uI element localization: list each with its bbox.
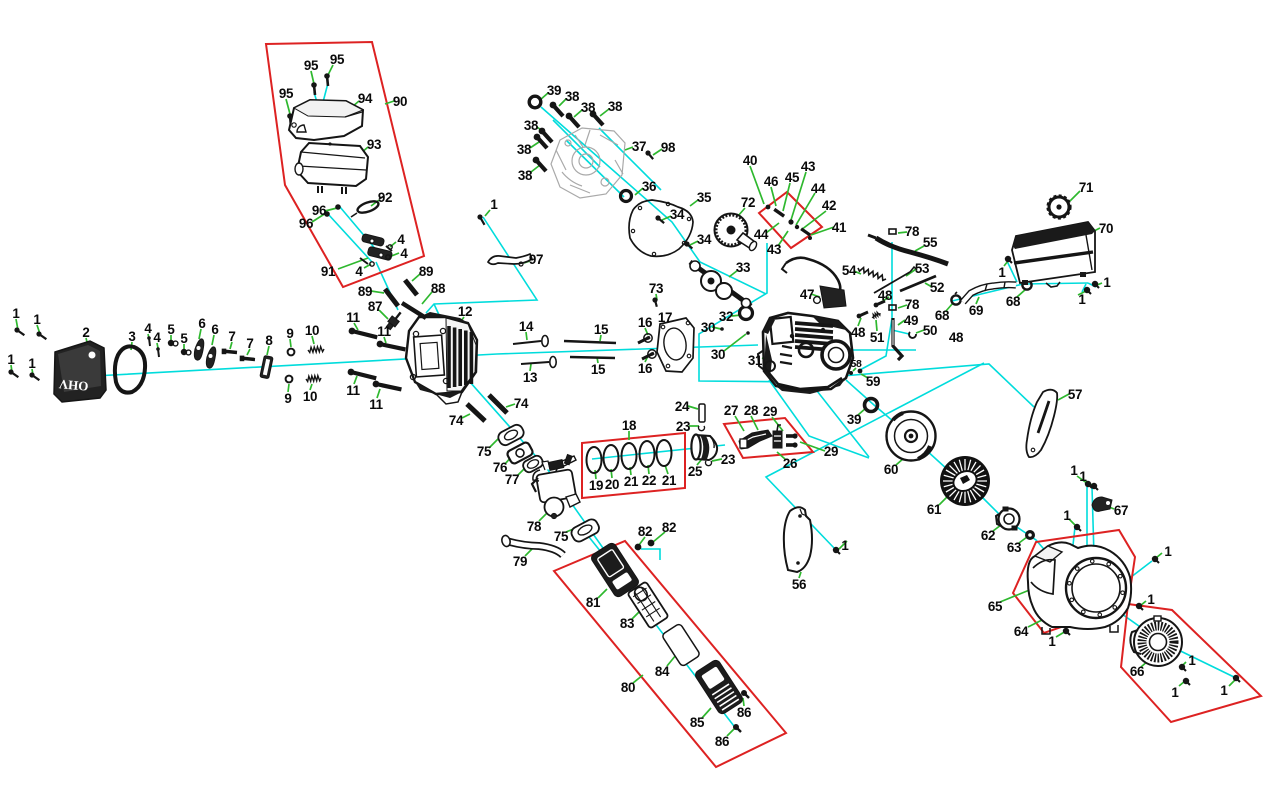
svg-text:44: 44 xyxy=(811,181,826,196)
svg-text:68: 68 xyxy=(1006,294,1021,309)
svg-text:70: 70 xyxy=(1099,221,1113,236)
svg-text:64: 64 xyxy=(1014,624,1029,639)
svg-text:9: 9 xyxy=(284,391,291,406)
svg-text:1: 1 xyxy=(33,312,41,327)
svg-text:47: 47 xyxy=(800,287,814,302)
svg-text:93: 93 xyxy=(367,137,381,152)
svg-text:4: 4 xyxy=(144,321,152,336)
svg-text:41: 41 xyxy=(832,220,847,235)
svg-text:34: 34 xyxy=(697,232,712,247)
svg-text:6: 6 xyxy=(211,322,218,337)
svg-text:17: 17 xyxy=(658,310,672,325)
svg-text:46: 46 xyxy=(764,174,778,189)
svg-text:1: 1 xyxy=(1220,683,1228,698)
svg-text:77: 77 xyxy=(505,472,519,487)
svg-text:60: 60 xyxy=(884,462,898,477)
svg-text:1: 1 xyxy=(998,265,1006,280)
svg-text:1: 1 xyxy=(12,306,20,321)
svg-text:23: 23 xyxy=(721,452,735,467)
svg-text:5: 5 xyxy=(180,331,188,346)
svg-text:92: 92 xyxy=(378,190,392,205)
svg-text:1: 1 xyxy=(1103,275,1111,290)
svg-text:96: 96 xyxy=(299,216,313,231)
svg-text:95: 95 xyxy=(279,86,294,101)
svg-text:1: 1 xyxy=(1070,463,1078,478)
svg-text:49: 49 xyxy=(904,313,918,328)
svg-text:38: 38 xyxy=(524,118,539,133)
svg-text:15: 15 xyxy=(591,362,606,377)
svg-text:50: 50 xyxy=(923,323,937,338)
svg-text:1: 1 xyxy=(1171,685,1179,700)
svg-text:57: 57 xyxy=(1068,387,1082,402)
svg-text:3: 3 xyxy=(128,329,135,344)
svg-text:66: 66 xyxy=(1130,664,1144,679)
svg-text:7: 7 xyxy=(246,336,253,351)
svg-text:1: 1 xyxy=(1078,292,1086,307)
svg-text:22: 22 xyxy=(642,473,656,488)
svg-text:11: 11 xyxy=(369,397,383,412)
svg-text:79: 79 xyxy=(513,554,527,569)
svg-text:11: 11 xyxy=(377,324,391,339)
svg-text:20: 20 xyxy=(605,477,619,492)
svg-text:21: 21 xyxy=(624,474,639,489)
svg-text:38: 38 xyxy=(518,168,533,183)
svg-text:35: 35 xyxy=(697,190,712,205)
svg-text:1: 1 xyxy=(490,197,498,212)
svg-text:89: 89 xyxy=(358,284,372,299)
svg-text:38: 38 xyxy=(581,100,596,115)
svg-text:78: 78 xyxy=(905,224,920,239)
svg-text:4: 4 xyxy=(153,330,161,345)
svg-text:84: 84 xyxy=(655,664,670,679)
svg-text:8: 8 xyxy=(265,333,273,348)
svg-text:16: 16 xyxy=(638,315,652,330)
svg-text:30: 30 xyxy=(711,347,725,362)
svg-text:4: 4 xyxy=(397,232,405,247)
svg-text:97: 97 xyxy=(529,252,543,267)
svg-text:37: 37 xyxy=(632,139,646,154)
svg-text:45: 45 xyxy=(785,170,800,185)
svg-text:1: 1 xyxy=(28,356,36,371)
svg-text:43: 43 xyxy=(767,242,781,257)
svg-text:56: 56 xyxy=(792,577,806,592)
svg-text:74: 74 xyxy=(514,396,529,411)
svg-text:16: 16 xyxy=(638,361,652,376)
svg-text:21: 21 xyxy=(662,473,677,488)
svg-text:29: 29 xyxy=(824,444,838,459)
svg-text:95: 95 xyxy=(330,52,345,67)
svg-text:11: 11 xyxy=(346,310,360,325)
svg-text:38: 38 xyxy=(517,142,532,157)
svg-text:86: 86 xyxy=(737,705,751,720)
svg-text:54: 54 xyxy=(842,263,857,278)
svg-text:96: 96 xyxy=(312,203,326,218)
svg-text:23: 23 xyxy=(676,419,690,434)
svg-text:82: 82 xyxy=(662,520,676,535)
svg-text:73: 73 xyxy=(649,281,663,296)
svg-text:31: 31 xyxy=(748,353,763,368)
svg-text:1: 1 xyxy=(1188,653,1196,668)
svg-text:28: 28 xyxy=(744,403,759,418)
svg-text:4: 4 xyxy=(355,264,363,279)
svg-text:10: 10 xyxy=(303,389,317,404)
svg-text:86: 86 xyxy=(715,734,729,749)
svg-text:68: 68 xyxy=(935,308,950,323)
svg-text:48: 48 xyxy=(851,325,866,340)
svg-text:40: 40 xyxy=(743,153,757,168)
svg-text:81: 81 xyxy=(586,595,601,610)
svg-text:63: 63 xyxy=(1007,540,1021,555)
svg-text:1: 1 xyxy=(1063,508,1071,523)
svg-text:80: 80 xyxy=(621,680,635,695)
svg-text:51: 51 xyxy=(870,330,885,345)
svg-text:58: 58 xyxy=(850,358,862,370)
svg-text:75: 75 xyxy=(477,444,492,459)
svg-text:1: 1 xyxy=(1164,544,1172,559)
svg-text:67: 67 xyxy=(1114,503,1128,518)
svg-text:4: 4 xyxy=(400,246,408,261)
svg-text:39: 39 xyxy=(547,83,561,98)
svg-text:61: 61 xyxy=(927,502,942,517)
svg-text:7: 7 xyxy=(228,329,235,344)
svg-text:65: 65 xyxy=(988,599,1003,614)
svg-text:55: 55 xyxy=(923,235,938,250)
svg-text:78: 78 xyxy=(905,297,920,312)
svg-text:71: 71 xyxy=(1079,180,1094,195)
svg-text:1: 1 xyxy=(1147,592,1155,607)
svg-text:78: 78 xyxy=(527,519,542,534)
svg-text:1: 1 xyxy=(841,538,849,553)
svg-text:29: 29 xyxy=(763,404,777,419)
svg-text:62: 62 xyxy=(981,528,995,543)
svg-text:69: 69 xyxy=(969,303,983,318)
svg-text:75: 75 xyxy=(554,529,569,544)
svg-text:74: 74 xyxy=(449,413,464,428)
svg-text:14: 14 xyxy=(519,319,534,334)
svg-text:42: 42 xyxy=(822,198,836,213)
svg-text:30: 30 xyxy=(701,320,715,335)
svg-text:95: 95 xyxy=(304,58,319,73)
svg-text:48: 48 xyxy=(949,330,964,345)
svg-text:91: 91 xyxy=(321,264,336,279)
svg-text:OHV: OHV xyxy=(58,377,89,395)
svg-text:87: 87 xyxy=(368,299,382,314)
svg-text:38: 38 xyxy=(608,99,623,114)
svg-text:27: 27 xyxy=(724,403,738,418)
svg-text:52: 52 xyxy=(930,280,944,295)
svg-text:5: 5 xyxy=(167,322,175,337)
svg-text:12: 12 xyxy=(458,304,472,319)
svg-text:10: 10 xyxy=(305,323,319,338)
svg-text:1: 1 xyxy=(7,352,15,367)
svg-text:26: 26 xyxy=(783,456,797,471)
svg-text:43: 43 xyxy=(801,159,815,174)
svg-text:98: 98 xyxy=(661,140,676,155)
svg-text:83: 83 xyxy=(620,616,634,631)
svg-text:48: 48 xyxy=(878,288,893,303)
svg-text:39: 39 xyxy=(847,412,861,427)
svg-text:33: 33 xyxy=(736,260,750,275)
svg-text:82: 82 xyxy=(638,524,652,539)
svg-text:1: 1 xyxy=(1048,634,1056,649)
svg-text:2: 2 xyxy=(82,325,89,340)
svg-text:88: 88 xyxy=(431,281,446,296)
svg-text:15: 15 xyxy=(594,322,609,337)
svg-text:89: 89 xyxy=(419,264,433,279)
svg-text:25: 25 xyxy=(688,464,703,479)
svg-text:85: 85 xyxy=(690,715,705,730)
svg-text:34: 34 xyxy=(670,207,685,222)
svg-text:9: 9 xyxy=(286,326,293,341)
svg-text:90: 90 xyxy=(393,94,407,109)
svg-text:18: 18 xyxy=(622,418,637,433)
svg-text:59: 59 xyxy=(866,374,880,389)
svg-text:19: 19 xyxy=(589,478,603,493)
svg-text:24: 24 xyxy=(675,399,690,414)
svg-text:38: 38 xyxy=(565,89,580,104)
svg-text:44: 44 xyxy=(754,227,769,242)
svg-text:13: 13 xyxy=(523,370,537,385)
svg-text:1: 1 xyxy=(1079,469,1087,484)
svg-text:36: 36 xyxy=(642,179,656,194)
svg-text:11: 11 xyxy=(346,383,360,398)
svg-text:72: 72 xyxy=(741,195,755,210)
svg-text:94: 94 xyxy=(358,91,373,106)
svg-text:53: 53 xyxy=(915,261,929,276)
svg-text:32: 32 xyxy=(719,309,733,324)
svg-text:6: 6 xyxy=(198,316,205,331)
